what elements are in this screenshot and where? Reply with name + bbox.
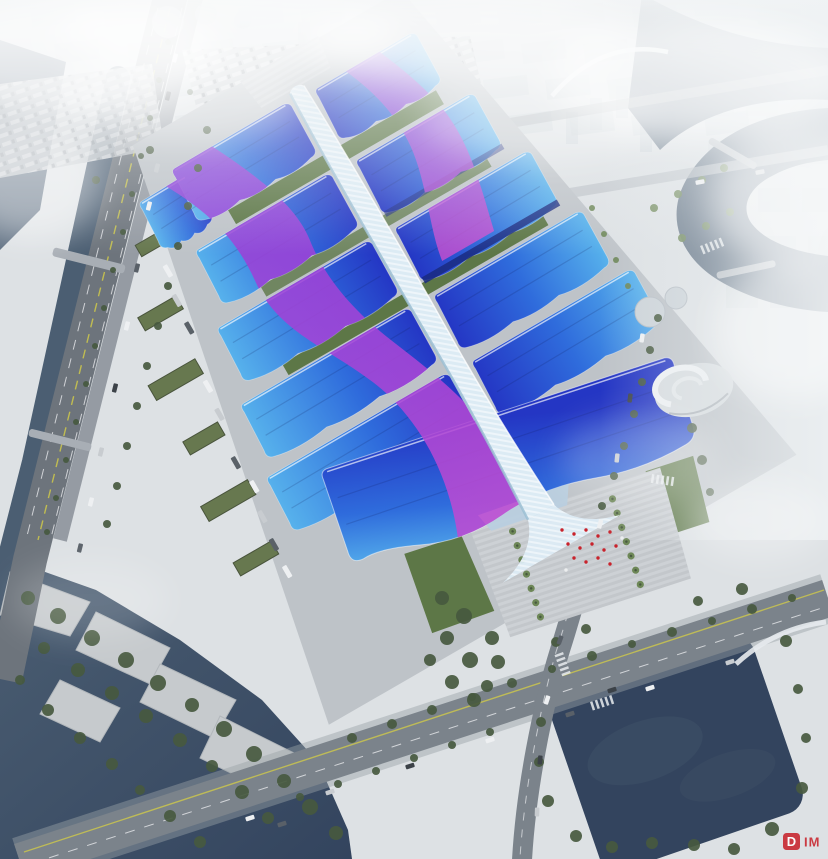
tree	[185, 698, 199, 712]
tree	[302, 799, 318, 815]
tree	[246, 746, 262, 762]
tree	[708, 617, 716, 625]
tree	[486, 728, 494, 736]
tree	[164, 810, 176, 822]
tree	[150, 675, 166, 691]
tree	[387, 719, 397, 729]
tree	[728, 843, 740, 855]
tree	[765, 822, 779, 836]
tree	[143, 362, 151, 370]
tree	[42, 704, 54, 716]
watermark-badge-letter: D	[787, 834, 796, 849]
red-flag	[608, 562, 611, 565]
tree	[606, 841, 618, 853]
tree	[262, 812, 274, 824]
tree	[123, 442, 131, 450]
red-flag	[596, 556, 599, 559]
tree	[101, 305, 107, 311]
tree	[92, 343, 98, 349]
tree	[118, 652, 134, 668]
rendering-canvas: D IM	[0, 0, 828, 859]
tree	[424, 654, 436, 666]
tree	[793, 684, 803, 694]
red-flag	[572, 556, 575, 559]
tree	[536, 717, 546, 727]
tree	[113, 482, 121, 490]
tree	[347, 733, 357, 743]
tree	[628, 640, 636, 648]
tree	[427, 705, 437, 715]
red-flag	[590, 542, 593, 545]
car	[535, 807, 540, 816]
tree	[372, 767, 380, 775]
tree	[235, 785, 249, 799]
tree	[485, 631, 499, 645]
red-flag	[596, 534, 599, 537]
red-flag	[560, 528, 563, 531]
tree	[491, 655, 505, 669]
tree	[456, 608, 472, 624]
tree	[44, 529, 50, 535]
tree	[296, 793, 304, 801]
tree	[542, 795, 554, 807]
tree	[74, 732, 86, 744]
tree	[15, 675, 25, 685]
tree	[135, 785, 145, 795]
red-flag	[572, 532, 575, 535]
tree	[334, 780, 342, 788]
tree	[747, 604, 757, 614]
car	[537, 755, 542, 764]
red-flag	[584, 528, 587, 531]
tree	[448, 741, 456, 749]
aerial-rendering: D IM	[0, 0, 828, 859]
tree	[780, 635, 792, 647]
tree	[736, 583, 748, 595]
tree	[164, 282, 172, 290]
red-flag	[614, 544, 617, 547]
tree	[103, 520, 111, 528]
tree	[570, 830, 582, 842]
tree	[277, 774, 291, 788]
red-flag	[566, 542, 569, 545]
tree	[173, 733, 187, 747]
tree	[667, 627, 677, 637]
tree	[435, 591, 449, 605]
tree	[110, 267, 116, 273]
tree	[796, 782, 808, 794]
white-flag	[564, 568, 567, 571]
tree	[410, 754, 418, 762]
tree	[788, 594, 796, 602]
tree	[83, 381, 89, 387]
watermark-text: IM	[804, 835, 820, 850]
tree	[329, 826, 343, 840]
tree	[801, 733, 811, 743]
red-flag	[584, 560, 587, 563]
tree	[194, 836, 206, 848]
tree	[445, 675, 459, 689]
tree	[106, 758, 118, 770]
red-flag	[602, 548, 605, 551]
tree	[462, 652, 478, 668]
tree	[63, 457, 69, 463]
tree	[206, 760, 218, 772]
red-flag	[578, 546, 581, 549]
tree	[154, 322, 162, 330]
tree	[53, 495, 59, 501]
tree	[216, 721, 232, 737]
tree	[73, 419, 79, 425]
tree	[139, 709, 153, 723]
tree	[548, 665, 556, 673]
tree	[581, 624, 591, 634]
tree	[507, 678, 517, 688]
tree	[133, 402, 141, 410]
tree	[71, 663, 85, 677]
tree	[38, 642, 50, 654]
tree	[481, 680, 493, 692]
tree	[688, 839, 700, 851]
tree	[105, 686, 119, 700]
tree	[440, 631, 454, 645]
tree	[646, 837, 658, 849]
tree	[587, 651, 597, 661]
tree	[693, 596, 703, 606]
tree	[467, 693, 481, 707]
